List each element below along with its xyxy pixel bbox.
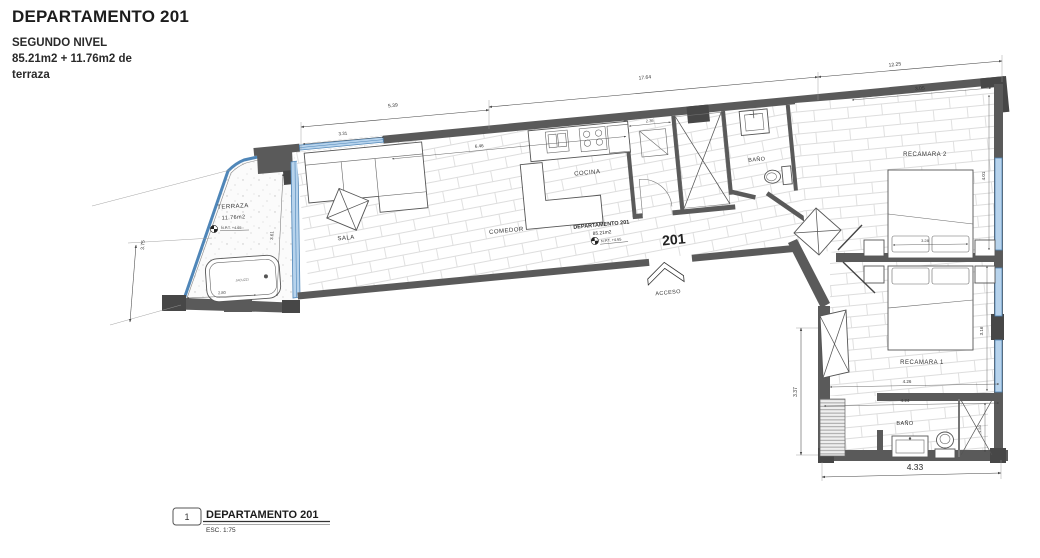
dim-rec1-side: 3.16 [979, 326, 984, 335]
dim-win-sala: 3.31 [338, 131, 348, 137]
bano2-door-stub [877, 430, 883, 458]
sheet-subtitle: SEGUNDO NIVEL [12, 37, 107, 49]
sheet-area-line1: 85.21m2 + 11.76m2 de [12, 53, 132, 65]
top-wall-pier [686, 104, 710, 123]
sheet-title: DEPARTAMENTO 201 [12, 7, 189, 26]
dim-interior-top: 6.46 [475, 143, 485, 149]
dim-shower: 1.50 [977, 424, 982, 433]
bano2-linen-closet [820, 399, 845, 456]
right-wing: RECAMARA 2 RECAMARA 1 BAÑO [788, 84, 1008, 463]
rec2-nightstand-left [864, 240, 884, 256]
bath1-vanity [739, 109, 769, 136]
dim-rec2-top: 3.05 [915, 86, 925, 93]
dim-line-right-top [818, 61, 1002, 77]
legend-index: 1 [184, 512, 189, 522]
rec1-window-upper [995, 268, 1002, 316]
terraza-level-marker [210, 225, 217, 232]
terraza-npt-label: N.P.T. +4.65 [221, 226, 242, 230]
rec1-bed [888, 266, 973, 350]
floor-plan-drawing: DEPARTAMENTO 201 SEGUNDO NIVEL 85.21m2 +… [0, 0, 1040, 558]
unit-number-label: 201 [661, 230, 686, 248]
witness-line-dim375-bottom [110, 305, 181, 325]
rec1-bano2-wall [877, 393, 1003, 401]
wing-bottom-right-column [990, 448, 1006, 463]
terraza-column-left [162, 295, 186, 311]
dim-main-top: 17.64 [638, 74, 651, 81]
dim-line-wing-bottom [822, 473, 1001, 477]
bano2-toilet-tank [935, 449, 955, 458]
witness-line-terraza-top [92, 170, 230, 206]
rec1-bed-frame [888, 266, 973, 350]
dim-right-top: 12.25 [888, 61, 901, 68]
terraza-column-right [282, 300, 300, 313]
rec2-window [995, 158, 1002, 250]
dim-rec2-side: 4.01 [981, 171, 986, 180]
acceso: ACCESO [646, 261, 685, 298]
dim-terraza-left: 3.75 [140, 240, 147, 250]
dim-terraza-glass: 3.61 [269, 230, 275, 240]
terraza-room: JACUZZI TERRAZA 11.76m2 N.P.T. +4.65 [162, 150, 300, 313]
rec2-nightstand-right [975, 240, 995, 256]
jacuzzi: JACUZZI [205, 254, 282, 302]
dim-bano2-width: 4.24 [901, 398, 910, 403]
legend-title: DEPARTAMENTO 201 [206, 509, 318, 521]
dim-terraza-bottom: 2.80 [218, 290, 227, 295]
rec1-closet [820, 310, 849, 378]
wing-right-pier [991, 314, 1004, 340]
rec1-nightstand-left [864, 266, 884, 283]
legend-scale: ESC. 1:75 [206, 527, 236, 534]
closet-bottom-wall-a [632, 213, 642, 219]
dim-rec2-bed: 3.28 [921, 238, 930, 243]
recamara1-label: RECAMARA 1 [900, 360, 944, 366]
title-block: DEPARTAMENTO 201 SEGUNDO NIVEL 85.21m2 +… [12, 7, 189, 81]
sheet-area-line2: terraza [12, 69, 50, 81]
bano2-faucet [909, 437, 911, 439]
dim-sala-top: 5.39 [388, 103, 398, 110]
recamara2-label: RECAMARA 2 [903, 152, 947, 158]
dim-closet: 2.36 [646, 118, 655, 124]
bano2-label: BAÑO [896, 420, 914, 427]
unit-level-marker [591, 237, 599, 245]
acceso-arrow-icon [646, 261, 684, 285]
terraza-area-label: 11.76m2 [222, 214, 246, 221]
dim-wing-left: 3.37 [793, 387, 799, 397]
rec1-nightstand-right [975, 266, 995, 283]
dim-rec1-width: 4.26 [903, 379, 912, 384]
acceso-label: ACCESO [655, 289, 681, 297]
dim-line-sala-top [301, 110, 489, 127]
floor-plan-sheet: DEPARTAMENTO 201 SEGUNDO NIVEL 85.21m2 +… [0, 0, 1040, 558]
legend: 1 DEPARTAMENTO 201 ESC. 1:75 [173, 508, 330, 534]
bath1-toilet-tank [782, 166, 793, 185]
dim-wing-bottom: 4.33 [907, 462, 924, 472]
dim-line-terraza-left [130, 245, 136, 322]
